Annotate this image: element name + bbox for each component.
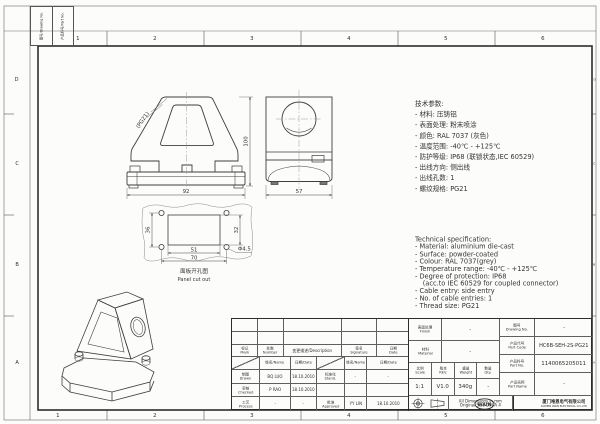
approved-label: 批准Approved <box>317 397 345 411</box>
scale-label: 比例Scale <box>409 363 432 379</box>
zone-number-bottom-2: 2 <box>145 410 165 421</box>
finish-value: - <box>442 319 500 341</box>
zone-number-bottom-5: 5 <box>436 410 456 421</box>
sig-cell-empty <box>345 384 367 397</box>
zone-letter-right-b: B <box>591 259 599 271</box>
spec-cn-title: 技术参数: <box>415 99 534 110</box>
sig-cell-empty <box>367 384 409 397</box>
corner-part-no-label: 产品料号/Part No. <box>61 12 65 39</box>
zone-letter-right-c: C <box>591 158 599 170</box>
spec-en-line: - Thread size: PG21 <box>415 302 558 309</box>
weight-label: 重量Weight <box>455 363 477 379</box>
qty-value: - <box>477 379 500 396</box>
sig-header-name1: 姓名/Name <box>260 357 291 370</box>
zone-letter-right-d: D <box>591 74 599 86</box>
spec-cn-line: - 出线方向: 侧出线 <box>415 162 534 173</box>
dim-51: 51 <box>191 247 198 253</box>
corner-cell-drawing-no: 图号/Drawing No. <box>31 7 53 45</box>
rev-cell-empty <box>232 319 258 332</box>
weight-value: 340g <box>455 379 477 396</box>
zone-letter-left-d: D <box>9 74 25 86</box>
projection-symbol-cell <box>409 396 449 411</box>
dim-92: 92 <box>183 189 190 195</box>
zone-number-top-2: 2 <box>145 31 165 46</box>
part-no-label: 产品料号Part No. <box>500 355 535 373</box>
rev-cell-empty <box>232 332 258 345</box>
dimension-lines <box>127 97 332 264</box>
wain-logo: WAIN <box>474 398 495 410</box>
drawing-no-label: 图号Drawing No. <box>500 319 535 337</box>
side-view <box>266 90 332 189</box>
drawn-name: BQ LUO <box>260 370 291 384</box>
drawing-no-value: - <box>535 319 593 337</box>
sig-header-date1: 日期/Date <box>291 357 317 370</box>
title-block: 标记Mark 处数Number 变更描述/Description 签名Signa… <box>231 318 592 410</box>
dim-hole-dia: Φ4.5 <box>238 247 251 253</box>
sig-cell-empty <box>317 384 345 397</box>
panel-caption-cn: 面板开孔图 <box>180 267 208 275</box>
zone-number-top-3: 3 <box>242 31 262 46</box>
process-name: - <box>260 397 291 411</box>
rev-header-description: 变更描述/Description <box>284 345 342 357</box>
panel-caption-en: Panel cut out <box>178 277 211 283</box>
spec-cn-line: - 颜色: RAL 7037 (灰色) <box>415 131 534 142</box>
drawn-label: 制图Drawn <box>232 370 260 384</box>
dim-57: 57 <box>296 189 303 195</box>
dim-70: 70 <box>191 255 198 261</box>
finish-label: 表面处理Finish <box>409 319 442 341</box>
part-no-value: 1140065205011 <box>535 355 593 373</box>
drawn-date: 18.10.2010 <box>291 370 317 384</box>
process-date: - <box>291 397 317 411</box>
sig-header-name2: 姓名/Name <box>345 357 367 370</box>
rev-cell-empty <box>342 319 377 332</box>
sig-header-diagonal <box>232 357 260 370</box>
part-code-value: HC6B-SEH-2S-PG21 <box>535 337 593 355</box>
rev-cell-empty <box>258 332 284 345</box>
zone-number-bottom-1: 1 <box>48 410 68 421</box>
stand-date: - <box>367 370 409 384</box>
zone-letter-left-c: C <box>9 158 25 170</box>
approved-date: 18.10.2010 <box>367 397 409 411</box>
zone-number-top-6: 6 <box>533 31 553 46</box>
zone-number-bottom-3: 3 <box>242 410 262 421</box>
zone-number-bottom-6: 6 <box>533 410 553 421</box>
rev-header-number: 处数Number <box>258 345 284 357</box>
rev-cell-empty <box>284 332 342 345</box>
rev-header-signature: 签名Signature <box>342 345 377 357</box>
checked-name: P RAO <box>260 384 291 397</box>
part-name-label: 产品名称Part Name <box>500 373 535 396</box>
part-code-label: 产品代号Part Code <box>500 337 535 355</box>
company-name-en: XIAMEN WAIN ELECTRICAL CO.,LTD <box>540 404 586 407</box>
zone-number-top-5: 5 <box>436 31 456 46</box>
rev-label: 版本REV. <box>432 363 455 379</box>
stand-name: - <box>345 370 367 384</box>
rev-cell-empty <box>258 319 284 332</box>
material-value: - <box>442 341 500 363</box>
approved-name: YY LIN <box>345 397 367 411</box>
dim-32: 32 <box>234 227 240 234</box>
sig-header-diagonal <box>317 357 345 370</box>
checked-date: 18.10.2010 <box>291 384 317 397</box>
spec-block-chinese: 技术参数: - 材料: 压铸铝 - 表面处理: 粉末喷涂 - 颜色: RAL 7… <box>415 99 534 194</box>
company-cell: WAIN 厦门唯恩电气有限公司 XIAMEN WAIN ELECTRICAL C… <box>513 396 593 411</box>
rev-cell-empty <box>377 332 409 345</box>
rev-value: V1.0 <box>432 379 455 396</box>
title-block-divider <box>408 319 409 411</box>
dimension-texts: 100 92 57 36 32 51 70 Φ4.5 (PG21) 面板开孔图 … <box>135 111 302 283</box>
part-name-value: - <box>535 373 593 396</box>
corner-drawing-no-label: 图号/Drawing No. <box>39 12 43 40</box>
rev-cell-empty <box>377 319 409 332</box>
stand-label: 标准化Stand. <box>317 370 345 384</box>
zone-letter-left-b: B <box>9 259 25 271</box>
rev-cell-empty <box>284 319 342 332</box>
isometric-view <box>62 292 154 401</box>
rev-header-mark: 标记Mark <box>232 345 258 357</box>
rev-cell-empty <box>342 332 377 345</box>
material-label: 材料Material <box>409 341 442 363</box>
zone-number-bottom-4: 4 <box>339 410 359 421</box>
dim-100: 100 <box>243 136 249 147</box>
spec-cn-line: - 材料: 压铸铝 <box>415 110 534 121</box>
spec-cn-line: - 防护等级: IP68 (联锁状态,IEC 60529) <box>415 152 534 163</box>
qty-label: 数量Qty. <box>477 363 500 379</box>
spec-cn-line: - 温度范围: -40℃ - +125℃ <box>415 141 534 152</box>
svg-text:WAIN: WAIN <box>477 402 491 408</box>
sig-header-date2: 日期/Date <box>367 357 409 370</box>
zone-letter-left-a: A <box>9 357 25 369</box>
spec-cn-line: - 表面处理: 粉末喷涂 <box>415 120 534 131</box>
spec-block-english: Technical specification: - Material: alu… <box>415 236 558 310</box>
spec-cn-line: - 螺纹规格: PG21 <box>415 183 534 194</box>
dim-36: 36 <box>146 226 152 233</box>
scale-value: 1:1 <box>409 379 432 396</box>
rev-header-date: 日期Date <box>377 345 409 357</box>
checked-label: 审核Checked <box>232 384 260 397</box>
first-angle-projection-icon <box>410 397 448 410</box>
drawing-sheet: 100 92 57 36 32 51 70 Φ4.5 (PG21) 面板开孔图 … <box>0 0 600 424</box>
process-label: 工艺Process <box>232 397 260 411</box>
zone-number-top-1: 1 <box>68 31 88 46</box>
front-view <box>127 92 245 190</box>
spec-cn-line: - 出线孔数: 1 <box>415 173 534 184</box>
zone-number-top-4: 4 <box>339 31 359 46</box>
